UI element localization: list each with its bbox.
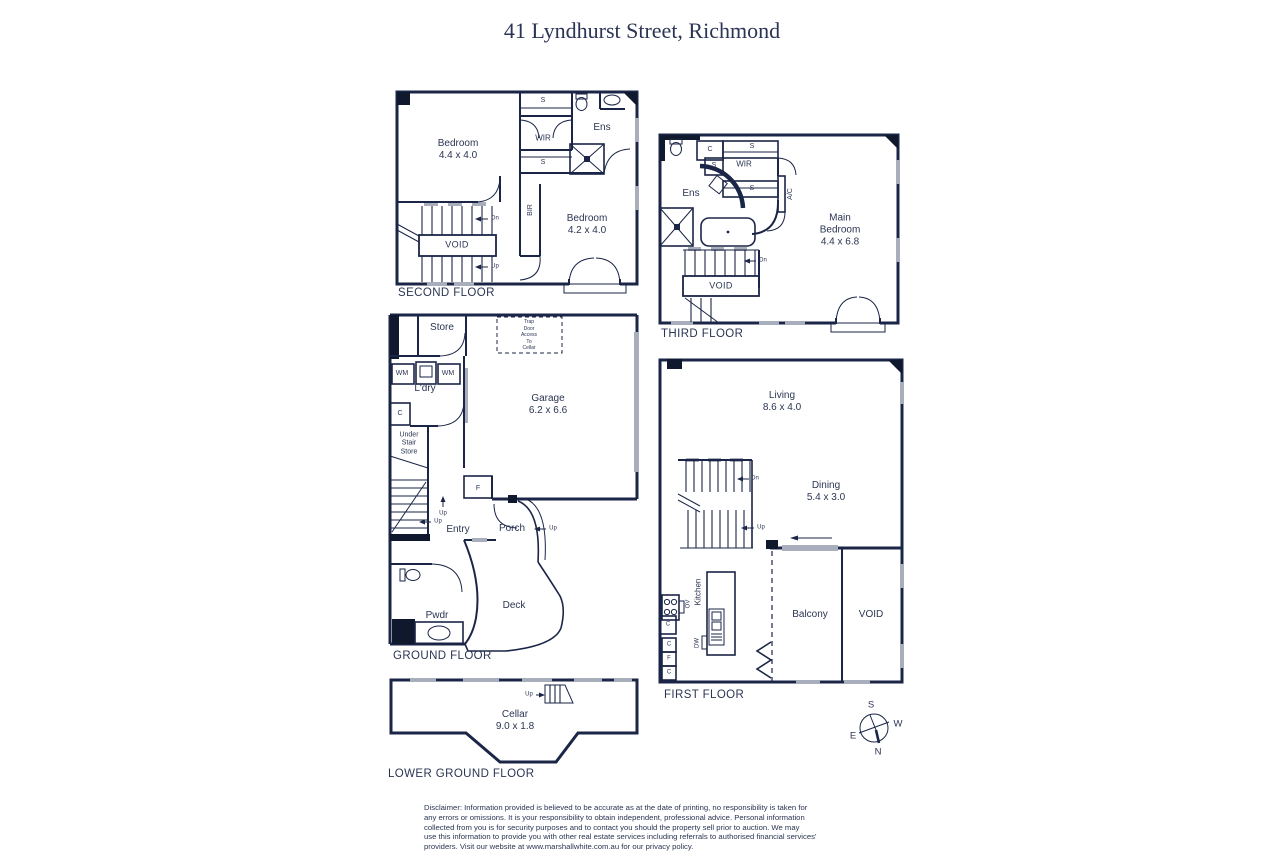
third-floor-name: THIRD FLOOR <box>661 328 743 340</box>
label-up: Up <box>757 524 765 531</box>
label-dn: Dn <box>751 475 759 482</box>
store-room <box>390 315 466 356</box>
first-floor-plan: Living 8.6 x 4.0 Dining 5.4 x 3.0 Kitche… <box>658 352 905 704</box>
compass-n: N <box>875 747 882 758</box>
label-void: VOID <box>709 281 733 292</box>
powder-room <box>390 540 478 644</box>
label-dn: Dn <box>759 257 767 264</box>
label-up3: Up <box>549 525 557 532</box>
direction-arrows <box>419 496 546 532</box>
label-ov: OV <box>685 600 692 609</box>
label-entry: Entry <box>446 524 469 536</box>
label-c1: C <box>666 621 670 628</box>
ensuite-fixtures <box>660 139 778 246</box>
label-up: Up <box>491 263 499 270</box>
label-void: VOID <box>859 609 883 621</box>
label-main-bedroom: Main Bedroom 4.4 x 6.8 <box>820 212 861 247</box>
lower-ground-floor-name: LOWER GROUND FLOOR <box>388 768 535 780</box>
staircase <box>678 460 753 548</box>
second-floor-plan: Bedroom 4.4 x 4.0 WIR Ens S S BIR Bedroo… <box>392 88 642 303</box>
second-floor-name: SECOND FLOOR <box>398 287 495 299</box>
label-bedroom1: Bedroom 4.4 x 4.0 <box>438 138 479 162</box>
label-c2: C <box>667 641 671 648</box>
bedroom-walls <box>397 176 500 202</box>
label-living: Living 8.6 x 4.0 <box>763 390 801 414</box>
french-doors <box>564 258 626 293</box>
label-f: F <box>476 485 480 493</box>
label-ens: Ens <box>593 122 610 134</box>
label-void: VOID <box>445 240 469 251</box>
label-garage: Garage 6.2 x 6.6 <box>529 393 567 417</box>
floorplan-page: 41 Lyndhurst Street, Richmond <box>0 0 1284 856</box>
label-bir: BIR <box>527 204 535 216</box>
staircase <box>390 476 430 541</box>
closets-wir <box>520 92 604 184</box>
staircase <box>536 685 573 703</box>
label-up1: Up <box>439 510 447 517</box>
ground-floor-name: GROUND FLOOR <box>393 650 492 662</box>
label-deck: Deck <box>503 600 526 612</box>
label-cellar: Cellar 9.0 x 1.8 <box>496 709 534 733</box>
direction-arrows <box>744 259 756 264</box>
label-kitchen: Kitchen <box>693 579 702 606</box>
label-bedroom2: Bedroom 4.2 x 4.0 <box>567 213 608 237</box>
lower-ground-floor-plan: Cellar 9.0 x 1.8 Up <box>388 672 640 772</box>
kitchen-fixtures <box>660 572 771 680</box>
label-dn: Dn <box>491 215 499 222</box>
label-wm1: WM <box>396 370 408 378</box>
label-c: C <box>397 410 402 418</box>
label-ac: A/C <box>787 188 795 200</box>
toilet-icon <box>400 569 405 581</box>
label-under-stair: Under Stair Store <box>399 432 418 457</box>
label-up2: Up <box>434 518 442 525</box>
third-floor-drawing <box>655 128 903 340</box>
french-doors <box>831 297 885 332</box>
basin-icon <box>428 626 450 640</box>
bir-robe <box>520 173 540 280</box>
label-pwdr: Pwdr <box>426 610 449 622</box>
compass-w: W <box>894 719 903 730</box>
label-s-top: S <box>541 97 546 105</box>
second-floor-drawing <box>392 88 642 303</box>
label-store: Store <box>430 322 454 334</box>
label-s1: S <box>750 143 755 151</box>
label-wm2: WM <box>442 370 454 378</box>
label-c: C <box>707 146 712 154</box>
compass-e: E <box>850 731 856 742</box>
label-porch: Porch <box>499 523 525 535</box>
label-s-bottom: S <box>541 159 546 167</box>
compass-rose: S W E N <box>846 696 908 758</box>
label-ldry: L'dry <box>414 383 435 395</box>
label-dining: Dining 5.4 x 3.0 <box>807 480 845 504</box>
label-up: Up <box>525 691 533 698</box>
label-ens: Ens <box>682 188 699 200</box>
label-f: F <box>667 655 671 662</box>
first-floor-name: FIRST FLOOR <box>664 689 744 701</box>
label-balcony: Balcony <box>792 609 828 621</box>
garage-door <box>634 332 639 472</box>
label-s3: S <box>750 185 755 193</box>
label-dw: DW <box>694 638 701 648</box>
compass-s: S <box>868 700 874 711</box>
page-title: 41 Lyndhurst Street, Richmond <box>0 18 1284 44</box>
label-trap-door: Trap Door Access To Cellar <box>521 319 537 352</box>
trough-icon <box>416 362 436 384</box>
window-marks <box>686 382 904 684</box>
ground-floor-plan: Store Trap Door Access To Cellar WM WM L… <box>388 308 640 660</box>
label-wir: WIR <box>736 159 752 168</box>
third-floor-plan: Ens C S S WIR S A/C Main Bedroom 4.4 x 6… <box>655 128 903 340</box>
label-c3: C <box>667 669 671 676</box>
label-wir: WIR <box>535 133 551 142</box>
label-s2: S <box>712 162 717 170</box>
disclaimer-text: Disclaimer: Information provided is beli… <box>424 803 894 852</box>
